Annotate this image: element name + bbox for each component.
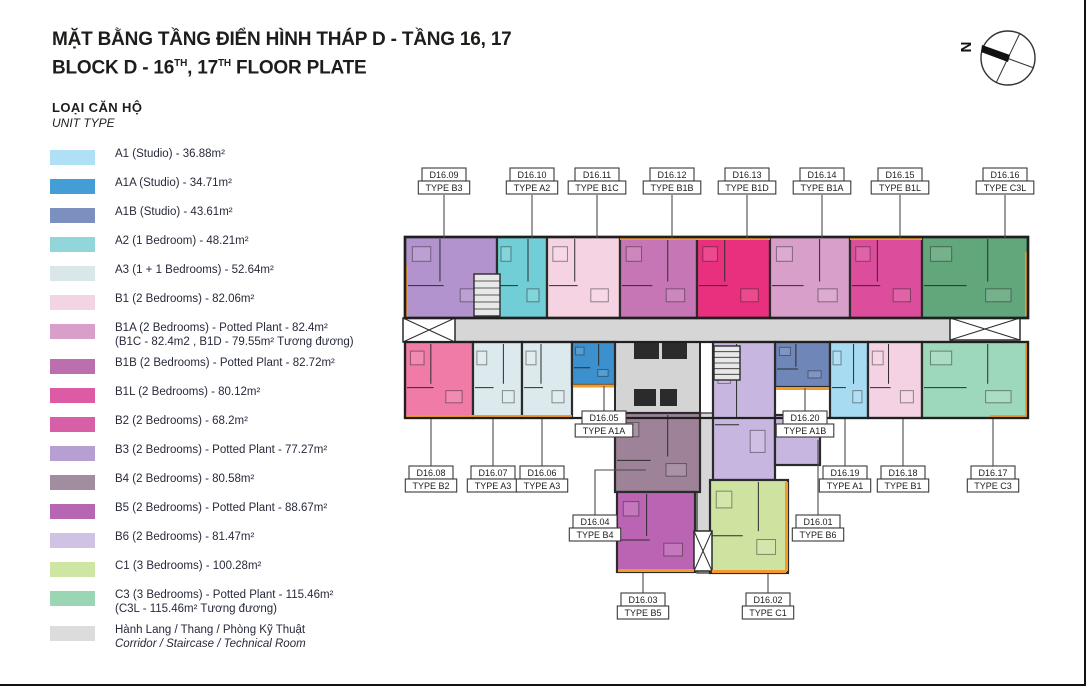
furniture [900, 391, 913, 403]
furniture [853, 391, 862, 403]
furniture [575, 347, 584, 355]
unit-type-text: TYPE C3 [974, 481, 1012, 491]
unit-type-text: TYPE A3 [475, 481, 512, 491]
unit-label-D16.15: D16.15TYPE B1L [871, 168, 929, 194]
unit-code-text: D16.07 [478, 468, 507, 478]
unit-type-text: TYPE B1B [650, 183, 693, 193]
furniture [526, 351, 536, 365]
unit-code-text: D16.18 [888, 468, 917, 478]
unit-code-text: D16.01 [803, 517, 832, 527]
unit-type-text: TYPE B1A [800, 183, 843, 193]
furniture [930, 247, 951, 262]
furniture [598, 370, 608, 377]
furniture [703, 247, 718, 262]
unit-type-text: TYPE C3L [984, 183, 1027, 193]
unit-type-text: TYPE B1L [879, 183, 921, 193]
unit-code-text: D16.06 [527, 468, 556, 478]
furniture [750, 430, 765, 452]
furniture [666, 464, 686, 477]
unit-label-D16.02: D16.02TYPE C1 [742, 593, 793, 619]
unit-code-text: D16.09 [429, 170, 458, 180]
unit-type-text: TYPE B1D [725, 183, 769, 193]
furniture [501, 247, 511, 262]
unit-label-D16.09: D16.09TYPE B3 [418, 168, 469, 194]
furniture [716, 491, 732, 508]
furniture [552, 391, 564, 403]
furniture [410, 351, 424, 365]
floor-plan-diagram: D16.09TYPE B3D16.10TYPE A2D16.11TYPE B1C… [0, 0, 1090, 691]
unit-label-D16.20: D16.20TYPE A1B [776, 411, 834, 437]
elevator [634, 389, 656, 406]
unit-label-D16.07: D16.07TYPE A3 [467, 466, 518, 492]
unit-label-D16.10: D16.10TYPE A2 [506, 168, 557, 194]
furniture [776, 247, 792, 262]
unit-type-text: TYPE A1B [784, 426, 827, 436]
unit-label-D16.19: D16.19TYPE A1 [819, 466, 870, 492]
furniture [818, 289, 837, 302]
unit-code-text: D16.12 [657, 170, 686, 180]
furniture [872, 351, 883, 365]
furniture [623, 502, 639, 516]
unit-code-text: D16.05 [589, 413, 618, 423]
elevator [662, 341, 687, 359]
unit-label-D16.03: D16.03TYPE B5 [617, 593, 668, 619]
elevator [634, 341, 659, 359]
unit-code-text: D16.17 [978, 468, 1007, 478]
unit-type-text: TYPE A1A [583, 426, 626, 436]
unit-code-text: D16.16 [990, 170, 1019, 180]
unit-type-text: TYPE B2 [412, 481, 449, 491]
furniture [527, 289, 539, 302]
unit-type-text: TYPE A2 [514, 183, 551, 193]
unit-code-text: D16.04 [580, 517, 609, 527]
furniture [591, 289, 609, 302]
unit-code-text: D16.08 [416, 468, 445, 478]
floor-plate-page: MẶT BẰNG TẦNG ĐIỂN HÌNH THÁP D - TẦNG 16… [0, 0, 1090, 691]
furniture [666, 289, 684, 302]
unit-code-text: D16.14 [807, 170, 836, 180]
furniture [833, 351, 841, 365]
unit-label-D16.06: D16.06TYPE A3 [516, 466, 567, 492]
unit-label-D16.18: D16.18TYPE B1 [877, 466, 928, 492]
unit-type-text: TYPE B3 [425, 183, 462, 193]
unit-label-D16.14: D16.14TYPE B1A [793, 168, 851, 194]
unit-label-D16.12: D16.12TYPE B1B [643, 168, 701, 194]
unit-label-D16.16: D16.16TYPE C3L [976, 168, 1034, 194]
unit-label-D16.17: D16.17TYPE C3 [967, 466, 1018, 492]
unit-label-D16.01: D16.01TYPE B6 [792, 515, 843, 541]
unit-code-text: D16.15 [885, 170, 914, 180]
furniture [741, 289, 759, 302]
furniture [808, 371, 821, 378]
unit-label-D16.11: D16.11TYPE B1C [568, 168, 626, 194]
compass-north-label: N [957, 42, 974, 53]
furniture [664, 543, 683, 556]
furniture [446, 391, 462, 403]
furniture [779, 347, 790, 355]
furniture [502, 391, 514, 403]
unit-type-text: TYPE B4 [576, 530, 613, 540]
unit-type-text: TYPE B1C [575, 183, 619, 193]
unit-code-text: D16.03 [628, 595, 657, 605]
unit-type-text: TYPE B1 [884, 481, 921, 491]
furniture [930, 351, 951, 365]
unit-code-text: D16.02 [753, 595, 782, 605]
furniture [856, 247, 870, 262]
unit-code-text: D16.13 [732, 170, 761, 180]
furniture [553, 247, 568, 262]
unit-label-D16.13: D16.13TYPE B1D [718, 168, 776, 194]
furniture [477, 351, 487, 365]
compass-needle [981, 45, 1010, 62]
unit-label-D16.05: D16.05TYPE A1A [575, 411, 633, 437]
furniture [626, 247, 641, 262]
furniture [893, 289, 910, 302]
furniture [757, 540, 776, 555]
furniture [986, 391, 1011, 403]
corridor [452, 318, 952, 342]
unit-label-D16.08: D16.08TYPE B2 [405, 466, 456, 492]
unit-label-D16.04: D16.04TYPE B4 [569, 515, 620, 541]
unit-code-text: D16.11 [583, 170, 611, 180]
unit-type-text: TYPE B6 [799, 530, 836, 540]
north-compass-icon: N [957, 31, 1035, 85]
furniture [986, 289, 1011, 302]
elevator [660, 389, 677, 406]
unit-type-text: TYPE A3 [524, 481, 561, 491]
furniture [412, 247, 430, 262]
unit-code-text: D16.19 [830, 468, 859, 478]
unit-type-text: TYPE B5 [624, 608, 661, 618]
unit-code-text: D16.20 [790, 413, 819, 423]
unit-type-text: TYPE A1 [827, 481, 864, 491]
unit-code-text: D16.10 [517, 170, 546, 180]
unit-type-text: TYPE C1 [749, 608, 787, 618]
